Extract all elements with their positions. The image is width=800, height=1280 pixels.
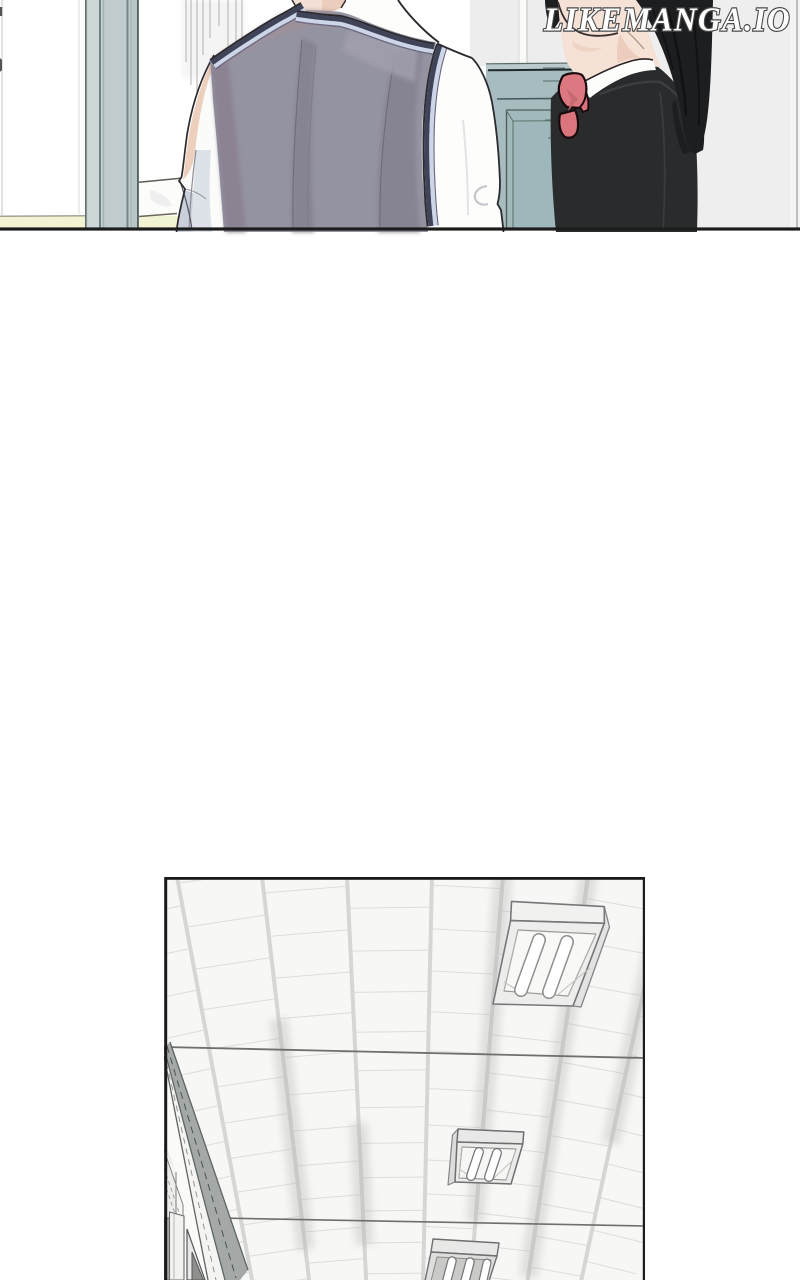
- svg-text:LIKEMANGA.IO: LIKEMANGA.IO: [543, 2, 791, 39]
